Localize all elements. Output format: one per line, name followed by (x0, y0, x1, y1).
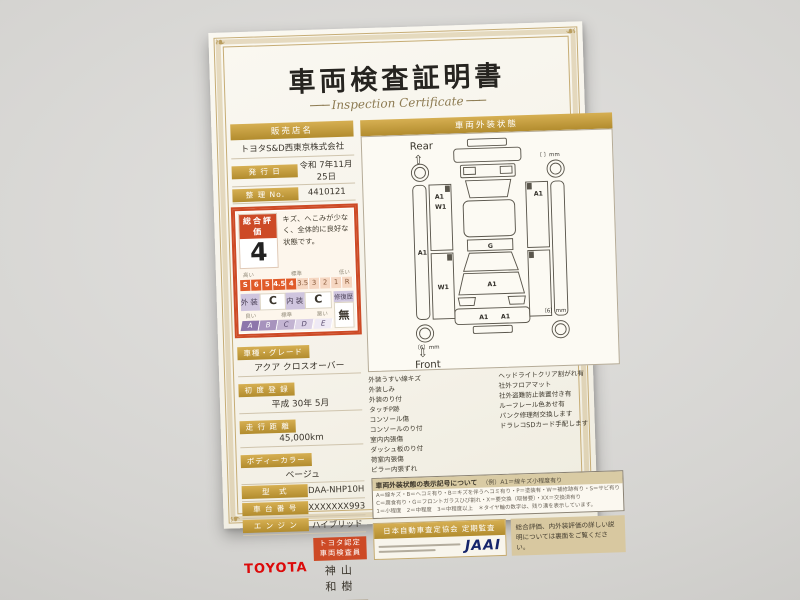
mark-right-rear-door-a: A1 (534, 191, 543, 198)
type-label: 型 式 (242, 484, 308, 499)
rating-scale: S 6 5 4.5 4 3.5 3 2 1 R (240, 276, 353, 291)
scale-label-low: 低い (339, 267, 350, 275)
issue-date-row: 発 行 日 令和 7年11月25日 (231, 155, 355, 187)
tread-right-rear: 〔 〕mm (536, 151, 559, 159)
serial-value: 4410121 (298, 186, 355, 198)
condition-legend: 外装うすい線キズ 外装しみ 外装のり付 タッチP跡 コンソール傷 コンソールのり… (368, 367, 623, 475)
scale-cell: 4.5 (273, 278, 286, 289)
grade-cell: D (295, 319, 315, 330)
inspector-section: TOYOTA トヨタ認定車両検査員 神山 和樹 (243, 536, 368, 599)
registration-label: 初 度 登 録 (238, 382, 295, 397)
scale-cell: 6 (251, 279, 262, 290)
grade-cell: E (313, 318, 333, 329)
model-label: 車種・グレード (237, 345, 309, 360)
scale-cell: S (240, 280, 251, 291)
mark-left-rocker: A1 (418, 250, 427, 257)
legend-right-list: ヘッドライトクリア割がれ有 社外フロアマット 社外盗難防止装置付き有 ルーフレー… (498, 367, 623, 471)
overall-rating-score: 4 (240, 238, 278, 268)
detail-row-mileage: 走 行 距 離 45,000km (239, 410, 363, 448)
grade-cell: A (241, 320, 261, 331)
model-value: アクア クロスオーバー (238, 357, 361, 374)
grade-label-mid: 標準 (281, 310, 292, 318)
scale-cell-current: 4 (286, 278, 297, 289)
interior-label: 内装 (286, 292, 306, 310)
rear-label: Rear (410, 141, 434, 153)
chassis-value: XXXXXXX993 (308, 501, 365, 513)
detail-row-model: 車種・グレード アクア クロスオーバー (237, 336, 361, 377)
exterior-label: 外装 (241, 293, 261, 311)
issue-date-label: 発 行 日 (232, 164, 298, 179)
issue-date-value: 令和 7年11月25日 (297, 157, 355, 183)
symbol-explanation-box: 車両外装状態の表示記号について （例）A1＝線キズ小程度有り A＝線キズ・B＝ヘ… (371, 470, 624, 519)
body-color-value: ベージュ (241, 465, 364, 482)
type-value: DAA-NHP10H (308, 484, 365, 496)
mark-bumper-a2: A1 (501, 313, 510, 320)
right-column: 車両外装状態 (360, 112, 630, 600)
scale-cell: 5 (262, 279, 273, 290)
front-label: Front (415, 359, 441, 371)
registration-value: 平成 30年 5月 (239, 394, 362, 411)
certified-inspector-badge: トヨタ認定車両検査員 (314, 536, 367, 561)
corner-flourish-icon: ❧ (229, 511, 240, 524)
mark-left-front-door-w: W1 (438, 284, 449, 291)
mark-roof-g: G (488, 243, 493, 250)
scale-cell: 1 (331, 277, 342, 288)
car-top-view-svg: Rear ⇧ ⇩ Front A1 A1 W1 W1 A1 G (362, 129, 619, 371)
grade-scale: A B C D E (241, 318, 332, 331)
rating-comment: キズ、へこみが少なく、全体的に良好な状態です。 (280, 211, 352, 268)
corner-flourish-icon: ❧ (565, 25, 576, 38)
rear-arrow-icon: ⇧ (413, 152, 423, 166)
fine-print (378, 540, 460, 556)
mark-left-rear-door-a: A1 (435, 194, 444, 201)
photo-background: ❧ ❧ ❧ ❧ 車両検査証明書 Inspection Certificate 販… (0, 0, 800, 600)
tread-left-front: 〔6〕mm (414, 344, 439, 352)
jaai-logo: JAAI (465, 538, 502, 555)
engine-value: ハイブリッド (309, 517, 366, 531)
scale-cell: R (342, 276, 353, 287)
interior-grade: C (305, 291, 332, 309)
scale-cell: 3 (309, 277, 320, 288)
repair-history-value: 無 (333, 301, 354, 328)
vehicle-diagram: Rear ⇧ ⇩ Front A1 A1 W1 W1 A1 G (361, 128, 620, 372)
certificate-paper: ❧ ❧ ❧ ❧ 車両検査証明書 Inspection Certificate 販… (208, 21, 597, 529)
body-color-label: ボディーカラー (241, 453, 312, 468)
tread-right-front: 〔6〕mm (541, 307, 566, 315)
chassis-label: 車 台 番 号 (242, 501, 308, 516)
serial-label: 整 理 No. (232, 187, 298, 202)
back-side-note: 総合評価、内外装評価の詳しい説明については裏面をご覧ください。 (510, 516, 626, 557)
corner-flourish-icon: ❧ (214, 36, 225, 49)
grade-label-good: 良い (245, 311, 256, 319)
exterior-grade: C (260, 292, 287, 310)
mark-hood-a: A1 (487, 281, 496, 288)
detail-row-engine: エ ン ジ ン ハイブリッド (243, 515, 366, 536)
left-column: 販売店名 トヨタS&D西東京株式会社 発 行 日 令和 7年11月25日 整 理… (230, 120, 371, 600)
scale-label-high: 高い (243, 270, 254, 278)
mark-bumper-a1: A1 (479, 314, 488, 321)
detail-row-registration: 初 度 登 録 平成 30年 5月 (238, 373, 362, 414)
mileage-label: 走 行 距 離 (240, 419, 297, 434)
serial-row: 整 理 No. 4410121 (232, 183, 355, 204)
scale-cell: 2 (320, 277, 331, 288)
engine-label: エ ン ジ ン (243, 518, 309, 533)
overall-rating-box: 総合評価 4 キズ、へこみが少なく、全体的に良好な状態です。 高い 標準 低い … (233, 205, 360, 336)
repair-history-label: 修復歴 (333, 290, 354, 302)
inspector-name: 神山 和樹 (314, 559, 368, 597)
legend-left-list: 外装うすい線キズ 外装しみ 外装のり付 タッチP跡 コンソール傷 コンソールのり… (368, 371, 493, 475)
jaai-audit-box: 日本自動車査定協会 定期監査 JAAI (373, 519, 507, 560)
grade-label-bad: 悪い (317, 309, 328, 317)
scale-cell: 3.5 (297, 278, 309, 289)
overall-rating-label: 総合評価 (239, 214, 277, 239)
toyota-logo: TOYOTA (244, 560, 308, 577)
mark-left-rear-door-w: W1 (435, 204, 446, 211)
scale-label-mid: 標準 (291, 269, 302, 277)
detail-row-color: ボディーカラー ベージュ (240, 444, 364, 485)
